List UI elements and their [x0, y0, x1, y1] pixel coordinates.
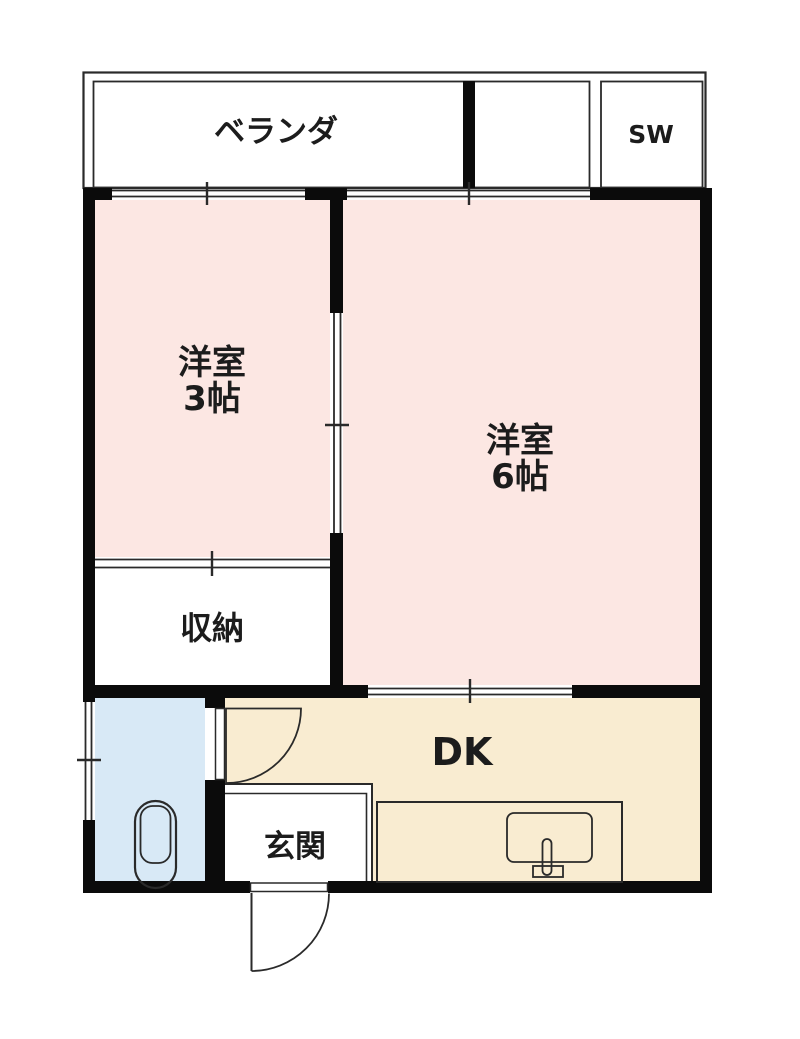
room3-size-label: 3帖: [183, 379, 241, 419]
floor-bathroom: [95, 698, 205, 881]
veranda-section: ベランダ SW: [84, 73, 706, 189]
wall-left-upper: [83, 188, 95, 702]
wall-bottom-left: [83, 881, 250, 893]
wall-top-right: [590, 188, 712, 200]
wall-right: [700, 188, 712, 893]
door-swing-arc: [252, 894, 330, 972]
veranda-area: [94, 82, 590, 188]
veranda-outer-outline: [84, 73, 706, 189]
floorplan-svg: ベランダ SW: [0, 0, 800, 1039]
veranda-divider-wall: [463, 81, 475, 188]
floorplan-canvas: ベランダ SW: [0, 0, 800, 1039]
room-floors: [95, 200, 700, 881]
room6-name-label: 洋室: [486, 421, 554, 461]
entrance-door: [250, 881, 329, 971]
entrance-section: 玄関: [225, 783, 373, 881]
wall-top-mid: [305, 188, 347, 200]
veranda-label: ベランダ: [214, 114, 338, 150]
entrance-label: 玄関: [264, 829, 326, 865]
room6-size-label: 6帖: [491, 457, 549, 497]
sw-label: SW: [628, 120, 674, 149]
wall-bathroom-lower: [205, 780, 225, 881]
room3-name-label: 洋室: [178, 343, 246, 383]
closet-label: 収納: [180, 609, 244, 647]
wall-room-divider-lower: [330, 533, 343, 698]
dk-label: DK: [432, 730, 495, 774]
wall-mid-left: [83, 685, 368, 698]
wall-bathroom-upper: [205, 698, 225, 708]
wall-room-divider-upper: [330, 200, 343, 313]
wall-mid-right: [572, 685, 712, 698]
